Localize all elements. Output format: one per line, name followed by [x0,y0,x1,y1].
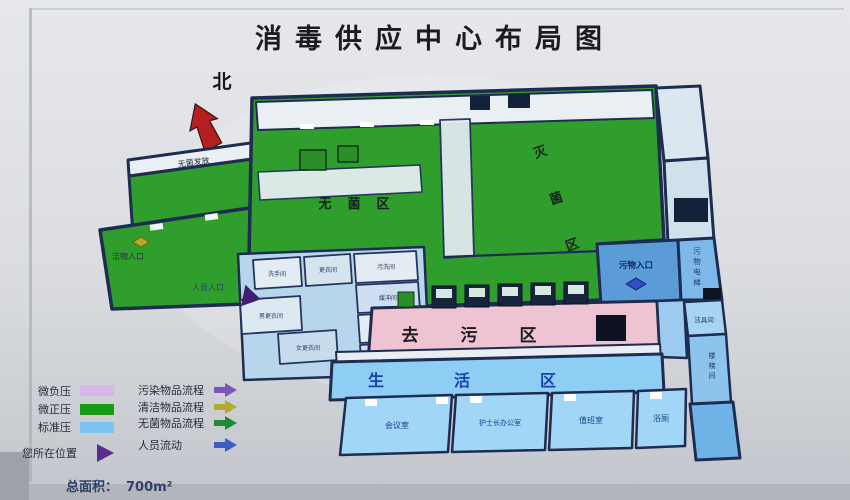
pressure-legend-label: 标准压 [38,420,71,434]
flow-legend-label: 人员流动 [138,438,182,452]
male-changing-label: 男更衣间 [259,312,283,320]
stairs-label: 楼梯间 [708,351,716,382]
staff-entrance-label: 人员入口 [192,283,224,292]
room-waste-entrance [597,240,681,304]
north-label: 北 [212,71,231,93]
door-mark [470,396,482,403]
inner-corridor [440,119,474,258]
female-changing-label: 女更衣间 [296,344,320,352]
door-mark [365,399,377,406]
washer-icon [398,292,414,307]
waste-entrance-label: 污物入口 [619,260,653,271]
bath-label: 浴厕 [653,413,669,423]
washer-icon [498,284,522,306]
changing-label: 更衣间 [319,266,337,274]
flow-legend-label: 无菌物品流程 [138,416,204,430]
door-mark [300,124,314,129]
meeting-room-label: 会议室 [385,420,409,430]
soiled-wash-label: 污洗间 [377,263,395,271]
equipment-block [470,96,490,110]
washer-icon [465,285,489,307]
door-mark [360,122,374,127]
total-area-value: 700m² [126,480,172,495]
sterile-area-label: 无菌区 [317,196,405,212]
flow-legend-label: 污染物品流程 [138,383,204,397]
sterilizer-icon [300,150,326,170]
tools-room-label: 洁具间 [694,315,714,324]
washer-icon [531,283,555,305]
page-title: 消毒供应中心布局图 [255,23,615,55]
right-top-room [656,86,708,161]
equipment-block [508,94,530,108]
pressure-swatch-standard [80,422,114,433]
sign-frame-left [29,8,32,482]
right-bottom-room [690,402,740,460]
living-area-label: 生活区 [368,371,626,390]
washroom-label: 洗手间 [268,270,286,278]
floor-plan-sign-photo: 消毒供应中心布局图 北 无菌发放 无菌区 灭菌区 污物入口 [0,0,850,500]
buffer-a-label: 缓冲间 [379,294,397,302]
pressure-swatch-negative [80,385,114,396]
passage [657,300,687,358]
door-mark [420,120,434,125]
pressure-legend-label: 微负压 [38,384,71,398]
washer-icon [432,286,456,308]
washer-icon [564,282,588,304]
door-mark [650,392,662,399]
head-nurse-office-label: 护士长办公室 [479,418,521,427]
total-area-label: 总面积： [66,479,118,495]
equipment-block [674,198,708,222]
you-are-here-label: 您所在位置 [22,446,77,460]
door-mark [436,397,448,404]
decontamination-area-label: 去污区 [402,325,579,346]
door-mark [564,394,576,401]
clean-entrance-label: 洁物入口 [112,251,144,261]
sterilizer-icon [338,146,358,162]
equipment-block [596,315,626,341]
waste-elevator-label: 污物电梯 [692,247,701,289]
flow-legend-label: 清洁物品流程 [138,400,204,414]
pressure-legend-label: 微正压 [38,402,71,416]
duty-room-label: 值班室 [579,415,603,425]
sign-frame-top [29,8,844,10]
pressure-swatch-positive [80,404,114,415]
layout-diagram: 消毒供应中心布局图 北 无菌发放 无菌区 灭菌区 污物入口 [0,0,850,500]
